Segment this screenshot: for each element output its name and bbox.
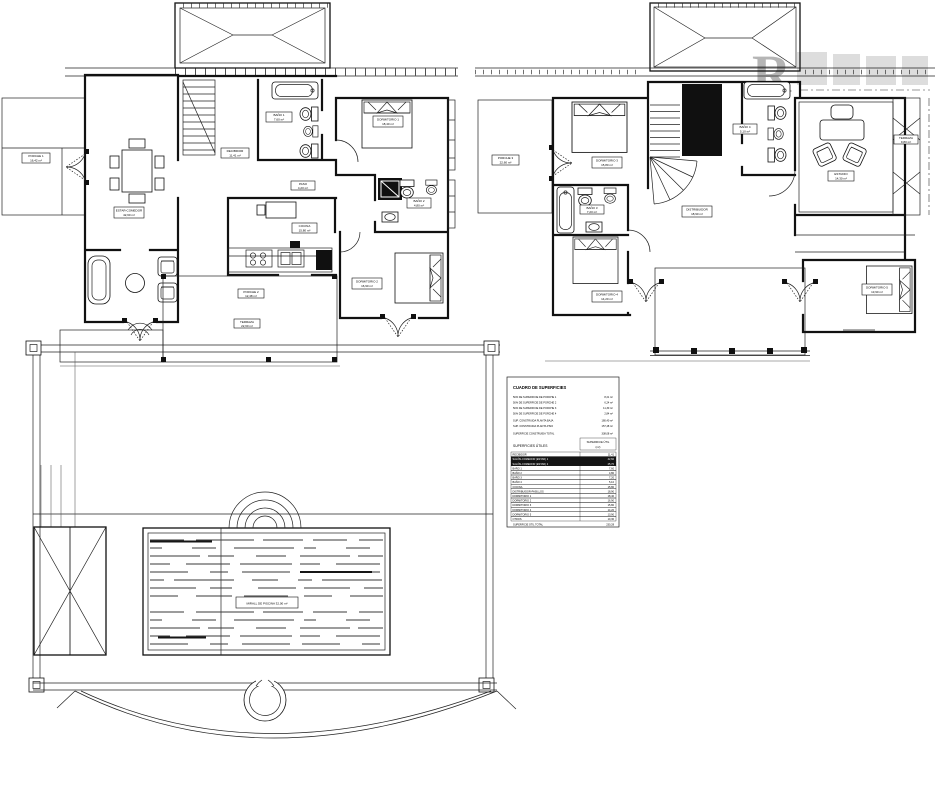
svg-text:25,70: 25,70 xyxy=(608,462,615,466)
french-door-symbol xyxy=(628,279,664,302)
svg-text:5,10 m²: 5,10 m² xyxy=(740,129,750,133)
landing-hall: DISTRIBUIDOR 18,90 m² xyxy=(628,206,915,252)
staircase-symbol xyxy=(650,84,722,204)
room-label: BAÑO 2 4,80 m² xyxy=(407,198,431,208)
gazebo-roof-symbol xyxy=(34,527,106,655)
svg-text:11,41: 11,41 xyxy=(608,453,615,457)
watermark-faded-block xyxy=(902,56,928,85)
room-label: COCINA 15,80 m² xyxy=(292,223,317,233)
svg-text:7,20: 7,20 xyxy=(609,476,615,480)
toilet-symbol xyxy=(300,144,318,158)
svg-text:DORMITORIO 4: DORMITORIO 4 xyxy=(513,508,532,512)
bathtub-symbol xyxy=(557,187,574,233)
bedroom-2: DORMITORIO 2 16,90 m² xyxy=(340,232,443,337)
pool-label: MIRALL DE PISCINA 32,00 m² xyxy=(236,597,298,608)
svg-text:BAÑO 1: BAÑO 1 xyxy=(513,465,523,470)
room-label: TERRAZA 22,60 m² xyxy=(234,319,260,328)
svg-text:SUP. CONSTRUIDA PLANTA PISO: SUP. CONSTRUIDA PLANTA PISO xyxy=(513,424,553,428)
study-room: ESTUDIO 14,30 m² xyxy=(769,102,893,212)
svg-text:4,20 m²: 4,20 m² xyxy=(298,186,308,190)
table-row: DISTRIBUIDOR-PASILLOS 18,90 xyxy=(511,489,616,494)
table-row: BAÑO 2 4,80 xyxy=(511,470,616,475)
french-door-symbol xyxy=(782,279,818,302)
bathroom-1: BAÑO 1 7,60 m² xyxy=(266,82,318,158)
svg-text:RECIBIDOR: RECIBIDOR xyxy=(513,453,527,457)
room-label: BAÑO 3 7,20 m² xyxy=(580,205,604,214)
pool-terrace-plan: MIRALL DE PISCINA 32,00 m² xyxy=(26,341,516,738)
table-row: DORMITORIO 5 13,90 xyxy=(511,512,616,517)
svg-text:15,80 m²: 15,80 m² xyxy=(601,163,613,167)
svg-text:10,30: 10,30 xyxy=(608,517,615,521)
svg-text:22,60 m²: 22,60 m² xyxy=(500,160,512,164)
svg-text:9,80 m²: 9,80 m² xyxy=(901,140,911,144)
bedroom-1: DORMITORIO 1 18,40 m² xyxy=(336,100,412,162)
corner-post xyxy=(484,341,499,355)
svg-text:ESTAR-COMEDOR: ESTAR-COMEDOR xyxy=(116,208,143,212)
svg-text:13,90: 13,90 xyxy=(608,512,615,516)
pool-water xyxy=(150,540,383,644)
useful-areas-col-header: SUPERFICIE ÚTIL (m²) xyxy=(580,438,616,450)
room-label: DORMITORIO 2 16,90 m² xyxy=(352,278,382,289)
svg-text:230,28: 230,28 xyxy=(606,523,614,527)
svg-text:16,90: 16,90 xyxy=(608,499,615,503)
svg-text:DORMITORIO 1: DORMITORIO 1 xyxy=(513,494,532,498)
toilet-symbol xyxy=(768,106,786,120)
colonnade-lines xyxy=(41,352,75,527)
svg-text:18,40 m²: 18,40 m² xyxy=(382,122,394,126)
armchair-symbol xyxy=(158,257,177,276)
table-row: OTROS 10,30 xyxy=(511,516,616,521)
svg-text:SUPERFICIE ÚTIL TOTAL: SUPERFICIE ÚTIL TOTAL xyxy=(513,522,544,527)
svg-text:50% DE SUPERFICIE DE PORCHE 3: 50% DE SUPERFICIE DE PORCHE 3 xyxy=(513,406,557,410)
table-row: DORMITORIO 4 14,20 xyxy=(511,507,616,512)
svg-text:15,80 m²: 15,80 m² xyxy=(299,228,311,232)
areas-table: CUADRO DE SUPERFICIES 50% DE SUPERFICIE … xyxy=(507,377,619,527)
svg-text:DORMITORIO 3: DORMITORIO 3 xyxy=(513,503,532,507)
table-row: RECIBIDOR 11,41 xyxy=(511,452,616,457)
bathtub-symbol xyxy=(272,82,318,99)
svg-text:18,90 m²: 18,90 m² xyxy=(691,212,703,216)
sink-symbol xyxy=(382,212,398,222)
svg-text:8,21 m²: 8,21 m² xyxy=(604,395,613,399)
table-row: DORMITORIO 2 16,90 xyxy=(511,498,616,503)
svg-text:157,48 m²: 157,48 m² xyxy=(602,424,614,428)
svg-text:DORMITORIO 5: DORMITORIO 5 xyxy=(866,285,888,289)
kitchen: COCINA 15,80 m² xyxy=(228,202,332,272)
armchair-symbol xyxy=(842,142,867,167)
bidet-symbol xyxy=(604,188,616,203)
svg-text:DORMITORIO 1: DORMITORIO 1 xyxy=(377,117,399,121)
svg-text:50% DE SUPERFICIE DE PORCHE 1: 50% DE SUPERFICIE DE PORCHE 1 xyxy=(513,395,557,399)
room-label: PASO 4,20 m² xyxy=(291,181,315,190)
toilet-symbol xyxy=(768,148,786,162)
svg-text:50% DE SUPERFICIE DE PORCHE 2: 50% DE SUPERFICIE DE PORCHE 2 xyxy=(513,401,557,405)
balcony-terrace: TERRAZA 9,80 m² xyxy=(893,98,929,215)
corner-post xyxy=(26,341,41,355)
svg-text:6,24 m²: 6,24 m² xyxy=(604,401,613,405)
room-label: TERRAZA 9,80 m² xyxy=(894,135,918,144)
svg-text:50% DE SUPERFICIE DE PORCHE 4: 50% DE SUPERFICIE DE PORCHE 4 xyxy=(513,412,557,416)
svg-text:BAÑO 4: BAÑO 4 xyxy=(513,479,523,484)
svg-text:15,80: 15,80 xyxy=(608,485,615,489)
svg-text:338,08 m²: 338,08 m² xyxy=(602,432,614,436)
armchair-symbol xyxy=(812,142,837,167)
room-label: PORCHE 1 16,42 m² xyxy=(22,153,50,163)
bathroom-2: BAÑO 2 4,80 m² xyxy=(378,178,437,222)
swimming-pool: MIRALL DE PISCINA 32,00 m² xyxy=(143,492,390,655)
svg-text:42,60 m²: 42,60 m² xyxy=(123,213,135,217)
table-row: BAÑO 1 7,60 xyxy=(511,465,616,470)
svg-text:DORMITORIO 2: DORMITORIO 2 xyxy=(356,279,378,283)
bed-symbol xyxy=(395,253,443,303)
svg-text:4,80 m²: 4,80 m² xyxy=(414,203,424,207)
floor-plan-sheet: R PORCHE 1 16,42 m² xyxy=(0,0,941,790)
armchair-symbol xyxy=(158,283,177,302)
svg-text:14,20: 14,20 xyxy=(608,508,615,512)
room-label: DORMITORIO 5 13,90 m² xyxy=(862,284,892,295)
scalloped-terrace-edge xyxy=(33,676,516,738)
table-row: DORMITORIO 1 18,40 xyxy=(511,493,616,498)
svg-text:COCINA: COCINA xyxy=(513,485,523,489)
svg-text:7,20 m²: 7,20 m² xyxy=(587,210,597,214)
areas-summary: 50% DE SUPERFICIE DE PORCHE 1 8,21 m² 50… xyxy=(513,395,613,436)
svg-text:DISTRIBUIDOR-PASILLOS: DISTRIBUIDOR-PASILLOS xyxy=(513,489,545,493)
watermark-faded-block xyxy=(797,52,827,85)
svg-text:SUPERFICIE ÚTIL: SUPERFICIE ÚTIL xyxy=(587,440,610,444)
porch-terrace: PORCHE 1 16,42 m² xyxy=(2,98,85,215)
toilet-symbol xyxy=(400,180,414,198)
table-row: DORMITORIO 3 15,80 xyxy=(511,503,616,508)
svg-text:11,30 m²: 11,30 m² xyxy=(603,406,613,410)
svg-text:MIRALL DE PISCINA 32,00 m²: MIRALL DE PISCINA 32,00 m² xyxy=(246,601,287,605)
room-label: BAÑO 1 7,60 m² xyxy=(266,112,292,122)
toilet-symbol xyxy=(578,188,592,206)
room-label: ESTUDIO 14,30 m² xyxy=(828,171,854,181)
svg-text:7,60: 7,60 xyxy=(609,466,615,470)
svg-text:DORMITORIO 5: DORMITORIO 5 xyxy=(513,512,532,516)
bedroom-3: DORMITORIO 3 15,80 m² xyxy=(572,102,627,168)
svg-text:DORMITORIO 4: DORMITORIO 4 xyxy=(596,292,618,296)
svg-text:13,90 m²: 13,90 m² xyxy=(871,290,883,294)
room-label: DORMITORIO 4 14,20 m² xyxy=(592,291,622,302)
svg-text:42,60: 42,60 xyxy=(608,457,615,461)
svg-text:4,80: 4,80 xyxy=(609,471,615,475)
svg-text:18,40: 18,40 xyxy=(608,494,615,498)
svg-text:BAÑO 3: BAÑO 3 xyxy=(513,475,523,480)
room-label: DISTRIBUIDOR 18,90 m² xyxy=(682,206,712,217)
table-row: COCINA 15,80 xyxy=(511,484,616,489)
living-room: ESTAR-COMEDOR 42,60 m² xyxy=(66,139,164,218)
room-label: BAÑO 4 5,10 m² xyxy=(733,124,757,134)
useful-areas-heading: SUPERFICIES ÚTILES xyxy=(513,444,548,448)
svg-text:7,60 m²: 7,60 m² xyxy=(274,117,284,121)
room-label: DORMITORIO 1 18,40 m² xyxy=(373,116,403,127)
room-label: RECIBIDOR 11,41 m² xyxy=(221,148,249,158)
svg-text:16,90 m²: 16,90 m² xyxy=(361,284,373,288)
useful-areas-rows: RECIBIDOR 11,41 SALÓN-COMEDOR (ESTAR) 1 … xyxy=(511,452,616,521)
table-row: SALÓN-COMEDOR (ESTAR) 1 42,60 xyxy=(511,456,616,461)
roof-deck-symbol xyxy=(175,3,330,68)
svg-text:DORMITORIO 2: DORMITORIO 2 xyxy=(513,499,532,503)
table-row: SALÓN-COMEDOR (ESTAR) 2 25,70 xyxy=(511,461,616,466)
room-label: PORCHE 2 12,48 m² xyxy=(238,289,264,298)
staircase-symbol xyxy=(183,80,215,155)
bidet-symbol xyxy=(768,128,783,140)
sitting-room xyxy=(88,256,177,341)
watermark-faded-block xyxy=(833,54,860,85)
svg-text:SUPERFICIE CONSTRUIDA TOTAL: SUPERFICIE CONSTRUIDA TOTAL xyxy=(513,432,555,436)
svg-text:12,48 m²: 12,48 m² xyxy=(245,294,257,298)
svg-text:DISTRIBUIDOR: DISTRIBUIDOR xyxy=(686,207,708,211)
svg-text:2,84 m²: 2,84 m² xyxy=(604,412,613,416)
bed-symbol xyxy=(572,102,627,152)
stair-void xyxy=(682,84,722,156)
room-label: DORMITORIO 3 15,80 m² xyxy=(592,157,622,168)
room-label: PORCHE 3 22,60 m² xyxy=(492,155,519,165)
svg-text:BAÑO 4: BAÑO 4 xyxy=(739,124,750,129)
terrace-side-edges xyxy=(33,345,493,690)
sink-symbol xyxy=(586,222,602,232)
svg-text:15,80: 15,80 xyxy=(608,503,615,507)
svg-text:16,42 m²: 16,42 m² xyxy=(30,158,42,162)
bidet-symbol xyxy=(304,126,318,137)
bed-symbol xyxy=(573,237,618,284)
ground-floor-plan: PORCHE 1 16,42 m² BAÑO 1 7,60 m² xyxy=(2,3,458,366)
french-door-symbol xyxy=(380,314,416,337)
toilet-symbol xyxy=(300,107,318,121)
svg-text:5,10: 5,10 xyxy=(609,480,615,484)
bedroom-5: DORMITORIO 5 13,90 m² xyxy=(782,266,912,330)
areas-table-title: CUADRO DE SUPERFICIES xyxy=(513,385,566,390)
svg-text:180,40 m²: 180,40 m² xyxy=(602,419,614,423)
bidet-symbol xyxy=(426,180,437,194)
svg-text:14,30 m²: 14,30 m² xyxy=(835,176,847,180)
svg-text:(m²): (m²) xyxy=(596,445,601,449)
bathtub-symbol xyxy=(744,82,790,99)
svg-text:OTROS: OTROS xyxy=(513,517,522,521)
table-row: BAÑO 3 7,20 xyxy=(511,475,616,480)
bedroom-4: DORMITORIO 4 14,20 m² xyxy=(573,237,622,302)
watermark-faded-block xyxy=(866,56,896,85)
table-row: BAÑO 4 5,10 xyxy=(511,479,616,484)
svg-text:11,41 m²: 11,41 m² xyxy=(229,153,241,157)
bathroom-3: BAÑO 3 7,20 m² xyxy=(557,187,616,233)
svg-text:BAÑO 2: BAÑO 2 xyxy=(413,198,424,203)
svg-text:BAÑO 1: BAÑO 1 xyxy=(273,112,284,117)
svg-text:DORMITORIO 3: DORMITORIO 3 xyxy=(596,158,618,162)
terrace-top-edge xyxy=(28,345,500,352)
svg-text:SUP. CONSTRUIDA PLANTA BAJA: SUP. CONSTRUIDA PLANTA BAJA xyxy=(513,419,554,423)
svg-text:18,90: 18,90 xyxy=(608,489,615,493)
room-label: ESTAR-COMEDOR 42,60 m² xyxy=(114,207,144,218)
svg-text:BAÑO 2: BAÑO 2 xyxy=(513,470,523,475)
svg-text:22,60 m²: 22,60 m² xyxy=(241,324,253,328)
useful-areas-total: SUPERFICIE ÚTIL TOTAL 230,28 xyxy=(513,522,615,527)
roman-steps-symbol xyxy=(229,492,301,528)
svg-text:14,20 m²: 14,20 m² xyxy=(601,297,613,301)
